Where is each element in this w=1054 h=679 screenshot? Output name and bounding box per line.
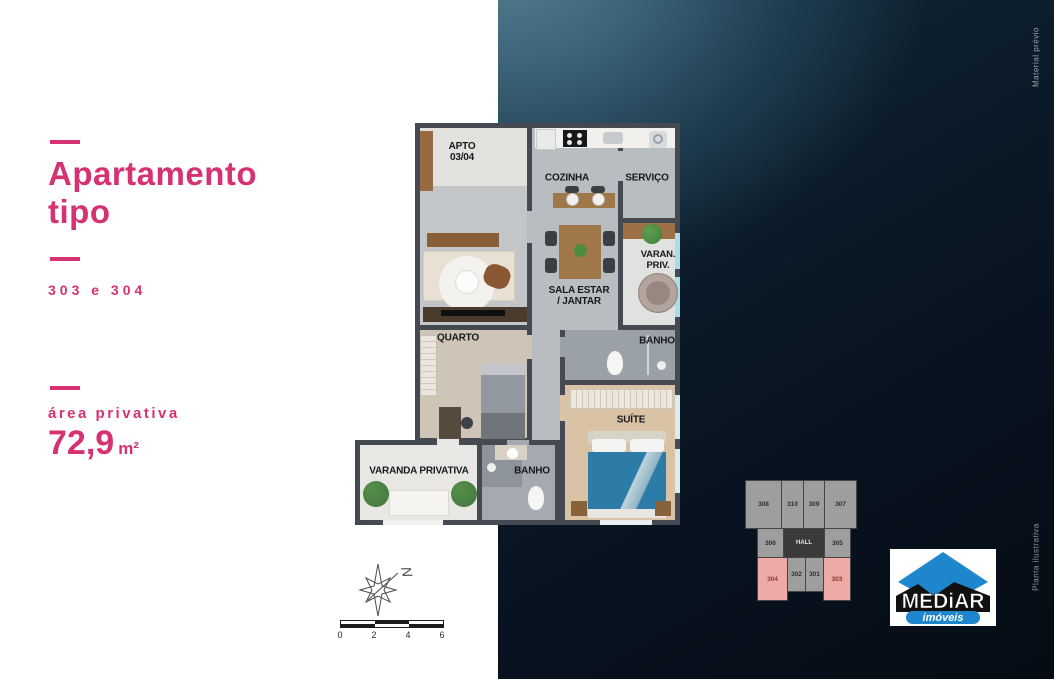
mediar-logo: MEDiAR imóveis <box>890 549 996 626</box>
stage: Material prévio Planta ilustrativa Apart… <box>0 0 1054 679</box>
scale-tick-6: 6 <box>439 630 444 640</box>
suite-wardrobe <box>570 389 673 409</box>
mediar-logo-icon: MEDiAR imóveis <box>890 549 996 626</box>
page-title: Apartamento tipo <box>48 155 257 231</box>
label-servico: SERVIÇO <box>625 173 668 184</box>
island-chair <box>565 186 579 193</box>
compass-rose: N <box>350 560 420 618</box>
quarto-bed-blanket <box>481 413 525 439</box>
banho-right-toilet <box>607 351 623 375</box>
side-note-bottom: Planta ilustrativa <box>1032 523 1041 591</box>
label-apto: APTO 03/04 <box>449 141 476 163</box>
key-unit-310: 310 <box>781 480 804 529</box>
door-quarto <box>527 335 532 359</box>
key-unit-305: 305 <box>824 528 851 558</box>
window-varanda-bottom <box>383 520 443 525</box>
banho-right-shower-head <box>657 361 666 370</box>
key-unit-303-highlighted: 303 <box>823 557 851 601</box>
stove-burner <box>567 140 572 145</box>
banho-bottom-toilet <box>528 486 544 510</box>
dining-chair <box>545 231 557 246</box>
scale-tick-2: 2 <box>371 630 376 640</box>
quarto-desk <box>439 407 461 439</box>
stove-burner <box>577 133 582 138</box>
window-suite-2 <box>675 449 680 493</box>
label-varan-line2: PRIV. <box>641 260 676 271</box>
island-chair <box>591 186 605 193</box>
tv <box>441 310 505 316</box>
corridor-floor <box>532 330 560 440</box>
window-suite-1 <box>675 395 680 439</box>
varan-priv-plant <box>642 224 662 244</box>
unit-numbers-label: 303 e 304 <box>48 282 146 298</box>
logo-tagline: imóveis <box>923 612 964 624</box>
suite-nightstand <box>571 501 587 516</box>
title-line1: Apartamento <box>48 155 257 193</box>
scale-segment <box>341 621 375 627</box>
suite-pillow <box>592 439 626 452</box>
area-value-row: 72,9 m² <box>48 424 139 463</box>
compass-north-letter: N <box>398 565 416 579</box>
label-varan-line1: VARAN. <box>641 249 676 260</box>
papasan-cushion <box>646 281 670 305</box>
quarto-bed <box>481 375 525 413</box>
label-sala: SALA ESTAR / JANTAR <box>549 285 610 307</box>
label-suite: SUÍTE <box>617 415 645 426</box>
accent-dash-top <box>50 140 80 144</box>
title-line2: tipo <box>48 193 257 231</box>
quarto-bed-pillows <box>481 363 525 375</box>
scale-segment <box>409 621 443 627</box>
side-note-top: Material prévio <box>1032 27 1041 87</box>
varanda-plant <box>451 481 477 507</box>
stove <box>563 130 587 147</box>
shower-head <box>487 463 496 472</box>
washer <box>649 131 667 148</box>
key-plan: 308 310 309 307 306 HALL 305 304 302 301… <box>744 479 856 601</box>
scale-tick-0: 0 <box>337 630 342 640</box>
label-apto-line2: 03/04 <box>449 152 476 163</box>
label-apto-line1: APTO <box>449 141 476 152</box>
scale-tick-4: 4 <box>405 630 410 640</box>
coffee-table <box>455 270 479 294</box>
key-unit-309: 309 <box>803 480 825 529</box>
washer-door <box>653 134 663 144</box>
label-cozinha: COZINHA <box>545 173 589 184</box>
floor-plan: APTO 03/04 COZINHA SERVIÇO SALA ESTAR / … <box>355 123 680 525</box>
varanda-plant <box>363 481 389 507</box>
suite-pillow <box>630 439 664 452</box>
label-banho-right: BANHO <box>639 336 675 347</box>
island-stool <box>566 193 579 206</box>
area-unit: m² <box>118 439 139 459</box>
window-varan-1 <box>675 233 680 269</box>
logo-name: MEDiAR <box>902 590 985 613</box>
label-varanda: VARANDA PRIVATIVA <box>369 466 468 477</box>
label-sala-line1: SALA ESTAR <box>549 285 610 296</box>
varanda-sofa <box>389 490 449 516</box>
key-hall: HALL <box>783 528 825 558</box>
fridge <box>536 129 556 150</box>
accent-dash-middle <box>50 257 80 261</box>
door-living-sala <box>527 211 532 243</box>
stove-burner <box>567 133 572 138</box>
label-varan-priv: VARAN. PRIV. <box>641 249 676 271</box>
label-quarto: QUARTO <box>437 333 479 344</box>
compass-icon: N <box>350 560 420 618</box>
door-banho-right <box>560 337 565 357</box>
scale-bar <box>340 620 444 628</box>
key-unit-306: 306 <box>757 528 784 558</box>
area-label: área privativa <box>48 405 180 422</box>
door-suite <box>560 395 565 421</box>
stove-burner <box>577 140 582 145</box>
quarto-wardrobe <box>420 335 437 397</box>
key-unit-307: 307 <box>824 480 857 529</box>
window-suite-bottom <box>600 520 652 525</box>
kitchen-island <box>553 193 615 208</box>
banho-bottom-basin <box>507 448 518 459</box>
scale-segment <box>375 621 409 627</box>
sideboard <box>427 233 499 247</box>
opening-servico <box>618 151 623 181</box>
key-unit-302: 302 <box>787 557 806 592</box>
door-varanda <box>437 438 459 445</box>
key-unit-301: 301 <box>805 557 824 592</box>
dining-chair <box>545 258 557 273</box>
accent-dash-bottom <box>50 386 80 390</box>
key-unit-304-highlighted: 304 <box>757 557 788 601</box>
quarto-chair <box>461 417 473 429</box>
label-sala-line2: / JANTAR <box>549 296 610 307</box>
dining-chair <box>603 231 615 246</box>
table-plant <box>574 244 587 257</box>
kitchen-sink <box>603 132 623 144</box>
label-banho-bottom: BANHO <box>514 466 550 477</box>
suite-nightstand <box>655 501 671 516</box>
dining-chair <box>603 258 615 273</box>
island-stool <box>592 193 605 206</box>
key-unit-308: 308 <box>745 480 782 529</box>
entry-shelf <box>420 131 433 191</box>
area-value: 72,9 <box>48 424 114 463</box>
